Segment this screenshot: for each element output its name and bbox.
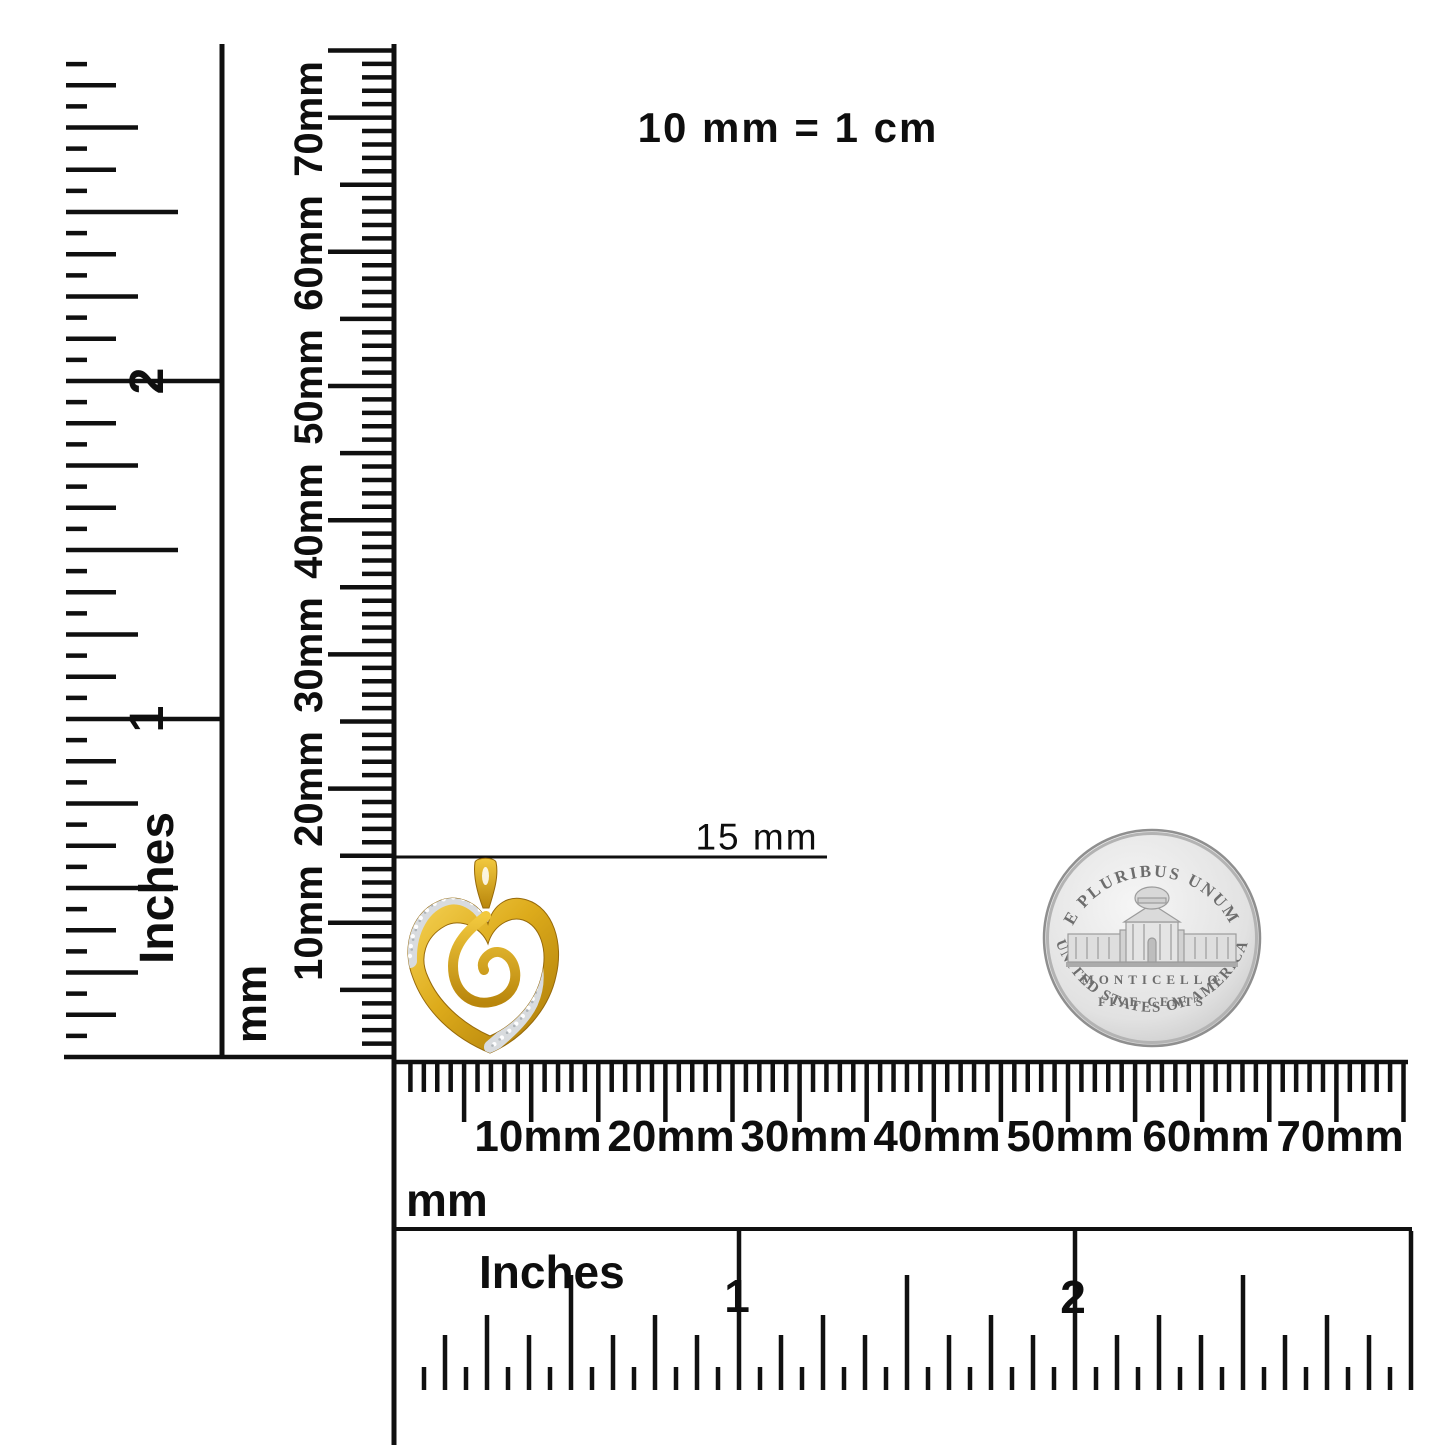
mm-cm-equivalence-note: 10 mm = 1 cm <box>638 107 939 149</box>
coin-building-label: MONTICELLO <box>1081 972 1222 987</box>
bottom-mm-ruler-unit-label: mm <box>406 1177 488 1223</box>
bottom-mm-ruler-mark-60: 60mm <box>1142 1115 1269 1159</box>
size-comparison-chart: 10 mm = 1 cm 15 mm Inches 1 2 mm 10mm 20… <box>0 0 1445 1445</box>
nickel-coin-image: E PLURIBUS UNUM UNITED STATES OF AMERICA… <box>1040 826 1264 1050</box>
left-mm-ruler-mark-20: 20mm <box>289 731 329 847</box>
left-mm-ruler-mark-40: 40mm <box>289 463 329 579</box>
bottom-mm-ruler-mark-20: 20mm <box>607 1115 734 1159</box>
left-mm-ruler-mark-50: 50mm <box>289 329 329 445</box>
heart-pendant-image <box>393 846 568 1060</box>
left-inches-ruler-mark-1: 1 <box>124 706 172 733</box>
left-mm-ruler-mark-10: 10mm <box>289 865 329 981</box>
bottom-mm-ruler-mark-70: 70mm <box>1276 1115 1403 1159</box>
bottom-mm-ruler-mark-40: 40mm <box>873 1115 1000 1159</box>
bottom-inches-ruler-unit-label: Inches <box>479 1249 625 1295</box>
left-mm-ruler-unit-label: mm <box>230 965 274 1043</box>
left-inches-ruler-unit-label: Inches <box>134 812 182 964</box>
pendant-height-label: 15 mm <box>695 819 818 856</box>
bottom-mm-ruler-mark-10: 10mm <box>474 1115 601 1159</box>
bottom-mm-ruler-mark-30: 30mm <box>740 1115 867 1159</box>
bottom-inches-ruler-mark-1: 1 <box>724 1273 750 1319</box>
left-mm-ruler-mark-60: 60mm <box>289 195 329 311</box>
bottom-inches-ruler-mark-2: 2 <box>1060 1274 1086 1320</box>
left-mm-ruler-mark-70: 70mm <box>289 61 329 177</box>
ruler-ticks-layer <box>0 0 1445 1445</box>
bottom-mm-ruler-mark-50: 50mm <box>1006 1115 1133 1159</box>
left-mm-ruler-mark-30: 30mm <box>289 597 329 713</box>
coin-denomination: FIVE CENTS <box>1098 994 1206 1009</box>
left-inches-ruler-mark-2: 2 <box>124 368 172 395</box>
